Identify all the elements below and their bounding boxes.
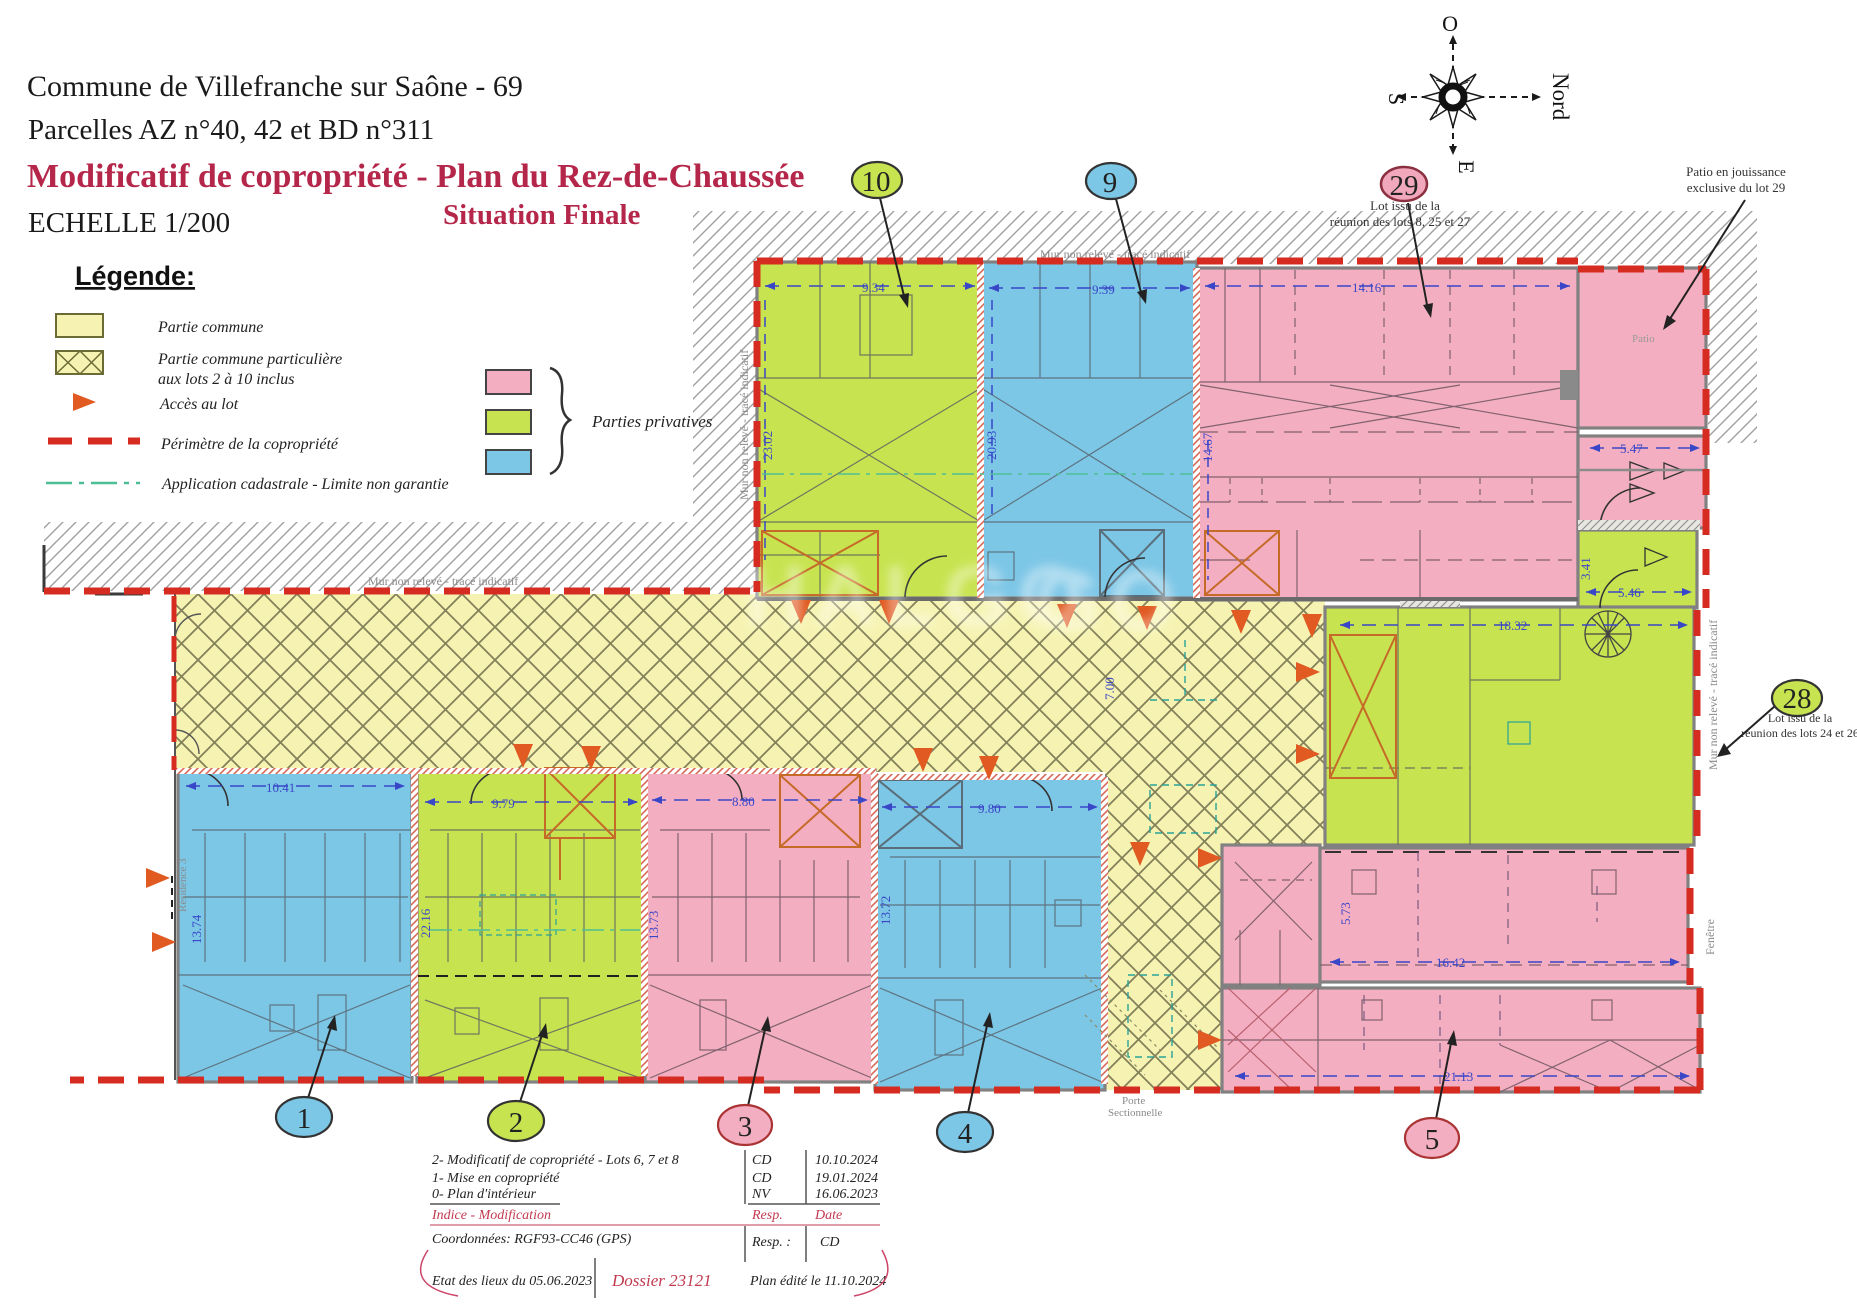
svg-text:Partie commune particulière: Partie commune particulière <box>157 351 342 368</box>
svg-text:NV: NV <box>751 1187 771 1202</box>
svg-text:CD: CD <box>752 1153 771 1168</box>
svg-text:5.73: 5.73 <box>1338 902 1353 925</box>
svg-text:2: 2 <box>509 1107 524 1139</box>
svg-text:5: 5 <box>1425 1124 1440 1156</box>
svg-text:CD: CD <box>820 1235 839 1250</box>
svg-text:9.39: 9.39 <box>1092 282 1115 297</box>
svg-text:Sectionnelle: Sectionnelle <box>1108 1107 1162 1119</box>
svg-text:Périmètre de la copropriété: Périmètre de la copropriété <box>160 436 339 453</box>
svg-text:3.41: 3.41 <box>1578 557 1593 580</box>
svg-text:3: 3 <box>738 1111 753 1143</box>
svg-text:CD: CD <box>752 1171 771 1186</box>
svg-text:Accès au lot: Accès au lot <box>159 396 239 413</box>
svg-text:Lot issu de la: Lot issu de la <box>1768 711 1833 725</box>
svg-text:Patio: Patio <box>1632 333 1655 345</box>
svg-text:Patio en jouissance: Patio en jouissance <box>1686 164 1786 179</box>
svg-text:Résidence 3: Résidence 3 <box>177 858 189 912</box>
svg-text:réunion des lots 8, 25 et 27: réunion des lots 8, 25 et 27 <box>1330 214 1471 229</box>
svg-text:9.34: 9.34 <box>862 280 885 295</box>
svg-text:18.32: 18.32 <box>1498 618 1527 633</box>
svg-text:16.06.2023: 16.06.2023 <box>815 1187 878 1202</box>
svg-text:5.47: 5.47 <box>1620 441 1643 456</box>
svg-text:Mur non relevé - tracé indicat: Mur non relevé - tracé indicatif <box>737 350 751 500</box>
svg-text:exclusive du lot 29: exclusive du lot 29 <box>1687 180 1786 195</box>
svg-text:13.74: 13.74 <box>189 914 204 944</box>
svg-text:E: E <box>1454 160 1479 173</box>
svg-text:9.80: 9.80 <box>978 801 1001 816</box>
svg-text:21.13: 21.13 <box>1444 1069 1473 1084</box>
svg-text:7.00: 7.00 <box>1102 677 1117 700</box>
svg-text:Parcelles AZ n°40, 42 et BD n°: Parcelles AZ n°40, 42 et BD n°311 <box>28 114 434 146</box>
svg-text:Coordonnées: RGF93-CC46 (GPS): Coordonnées: RGF93-CC46 (GPS) <box>432 1232 632 1247</box>
svg-text:Nord: Nord <box>1548 73 1573 121</box>
svg-text:20.93: 20.93 <box>984 431 999 460</box>
svg-text:14.67: 14.67 <box>1200 432 1215 462</box>
svg-text:Fenêtre: Fenêtre <box>1703 919 1717 955</box>
svg-text:Plan édité le 11.10.2024: Plan édité le 11.10.2024 <box>749 1274 886 1289</box>
svg-text:Dossier 23121: Dossier 23121 <box>611 1271 712 1290</box>
svg-text:réunion des lots 24 et 26: réunion des lots 24 et 26 <box>1741 726 1857 740</box>
svg-text:Resp. :: Resp. : <box>751 1235 791 1250</box>
svg-text:Porte: Porte <box>1122 1095 1145 1107</box>
svg-text:2- Modificatif de copropriété: 2- Modificatif de copropriété - Lots 6, … <box>432 1153 679 1168</box>
svg-text:Partie commune: Partie commune <box>157 319 263 336</box>
svg-text:13.72: 13.72 <box>878 896 893 925</box>
svg-text:Mur non relevé - tracé indic: Mur non relevé - tracé indicatif <box>368 574 518 588</box>
svg-text:Situation Finale: Situation Finale <box>443 199 641 231</box>
svg-text:4: 4 <box>958 1118 973 1150</box>
svg-text:aux lots 2 à 10 inclus: aux lots 2 à 10 inclus <box>158 371 294 388</box>
svg-text:22.16: 22.16 <box>418 908 433 938</box>
svg-text:5.46: 5.46 <box>1618 585 1641 600</box>
svg-text:1: 1 <box>297 1103 312 1135</box>
svg-text:Lot issu de la: Lot issu de la <box>1370 198 1440 213</box>
svg-text:Commune de Villefranche sur Sa: Commune de Villefranche sur Saône - 69 <box>27 70 523 103</box>
svg-text:19.01.2024: 19.01.2024 <box>815 1171 878 1186</box>
svg-text:Resp.: Resp. <box>751 1208 783 1223</box>
svg-text:9.79: 9.79 <box>492 796 515 811</box>
svg-text:13.73: 13.73 <box>646 911 661 940</box>
svg-text:Modificatif de copropriété - P: Modificatif de copropriété - Plan du Rez… <box>27 158 804 195</box>
svg-text:10.41: 10.41 <box>266 780 295 795</box>
svg-text:S: S <box>1384 93 1409 105</box>
svg-text:Parties privatives: Parties privatives <box>591 412 713 431</box>
svg-text:10.10.2024: 10.10.2024 <box>815 1153 878 1168</box>
svg-text:0- Plan d'intérieur: 0- Plan d'intérieur <box>432 1187 537 1202</box>
svg-text:8.80: 8.80 <box>732 794 755 809</box>
svg-text:GO: GO <box>1035 554 1183 649</box>
svg-text:Indice - Modification: Indice - Modification <box>431 1208 551 1223</box>
svg-text:9: 9 <box>1103 167 1118 199</box>
svg-text:16.42: 16.42 <box>1436 955 1465 970</box>
svg-text:Légende:: Légende: <box>75 261 195 291</box>
svg-text:Date: Date <box>814 1208 842 1223</box>
svg-text:Etat des lieux du 05.06.2023: Etat des lieux du 05.06.2023 <box>431 1274 592 1289</box>
svg-text:23.02: 23.02 <box>760 431 775 460</box>
svg-text:Application cadastrale - Limit: Application cadastrale - Limite non gara… <box>161 476 449 493</box>
svg-text:Mur non relevé - tracé indicat: Mur non relevé - tracé indicatif <box>1706 620 1720 770</box>
svg-text:10: 10 <box>862 166 891 198</box>
svg-text:14.16: 14.16 <box>1352 280 1382 295</box>
svg-text:ECHELLE 1/200: ECHELLE 1/200 <box>28 207 230 239</box>
svg-text:1- Mise en copropriété: 1- Mise en copropriété <box>432 1171 560 1186</box>
svg-text:O: O <box>1442 11 1458 36</box>
